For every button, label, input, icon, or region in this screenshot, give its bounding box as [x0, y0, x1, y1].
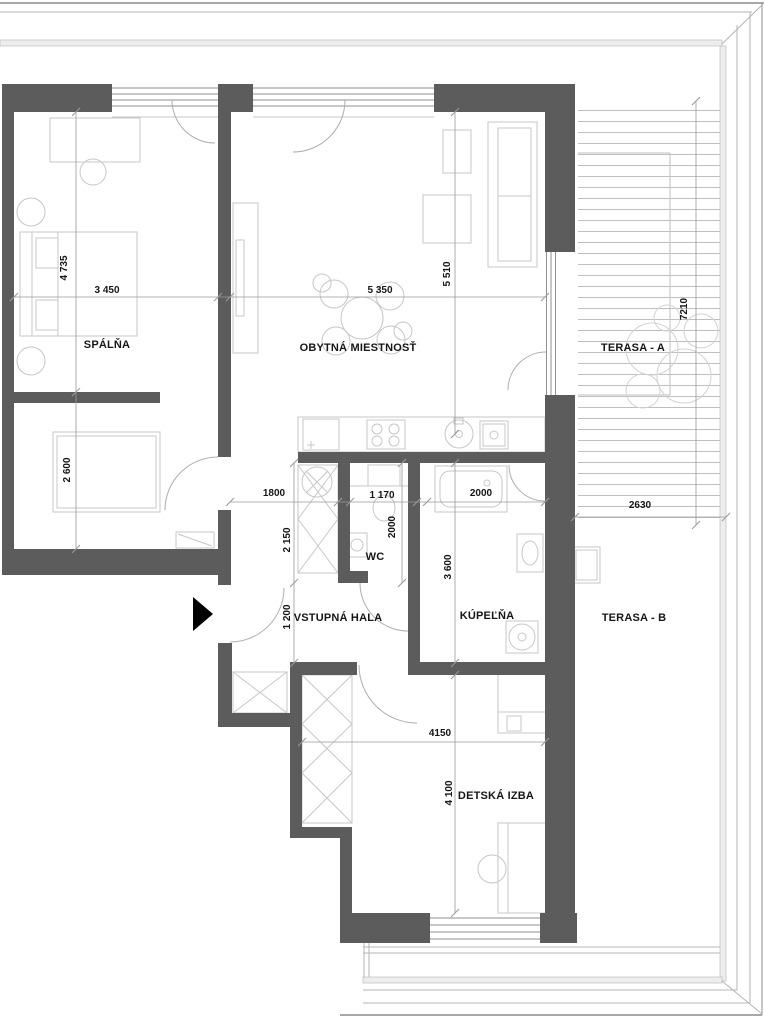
terrace-a-door-swing	[508, 352, 546, 390]
kids-bed	[498, 672, 547, 733]
bedroom-bed	[20, 232, 137, 336]
dim-bedroom-width: 3 450	[94, 285, 119, 296]
hob-burner	[389, 436, 399, 446]
wall-segment	[434, 84, 575, 112]
bedroom-plant	[17, 347, 45, 375]
wall-segment	[2, 549, 218, 575]
dim-hall-width: 1800	[263, 488, 286, 499]
dim-kids-width: 4150	[429, 728, 452, 739]
dim-terrace-b-width: 2630	[629, 500, 652, 511]
kids-chair	[478, 855, 506, 883]
dishwasher-inner	[483, 424, 505, 446]
tv-set	[236, 240, 244, 316]
room-label-wc: WC	[366, 551, 385, 563]
terrace-unit-inner	[576, 550, 597, 580]
wc-cistern	[368, 465, 400, 486]
bedroom-chair	[80, 159, 106, 185]
wall-segment	[408, 463, 420, 675]
frame-band-bottom	[363, 977, 722, 983]
bedroom-door-swing	[165, 457, 218, 510]
walls-layer	[2, 84, 577, 943]
wall-segment	[218, 510, 231, 585]
bedroom-plant	[17, 198, 45, 226]
room-label-hall: VSTUPNÁ HALA	[294, 611, 383, 624]
wall-segment	[298, 452, 545, 463]
dim-bedroom-depth: 4 735	[59, 255, 70, 280]
wall-segment	[218, 713, 290, 727]
terrace-decking	[578, 104, 720, 528]
bath-basin-bowl	[522, 541, 538, 565]
wall-segment	[545, 112, 575, 252]
wall-segment	[545, 395, 575, 943]
wall-segment	[2, 84, 14, 563]
kitchen-hob	[367, 420, 405, 449]
washing-machine-door	[518, 633, 526, 641]
wall-segment	[340, 913, 430, 943]
dining-chair	[320, 280, 348, 308]
room-label-living: OBYTNÁ MIESTNOSŤ	[300, 341, 417, 354]
dining-plant	[313, 274, 331, 292]
room-label-bedroom: SPÁLŇA	[84, 338, 130, 351]
dishwasher	[480, 421, 508, 449]
bathtub-drain	[484, 480, 490, 486]
room-label-terrace-a: TERASA - A	[601, 342, 665, 354]
kids-bed-pillow	[507, 716, 521, 731]
dim-hall-lower-depth: 1 200	[282, 604, 293, 629]
living-balcony-door-swing	[293, 100, 345, 152]
dim-kids-depth: 4 100	[444, 780, 455, 805]
kids-desk	[498, 823, 547, 913]
tv-sideboard	[233, 203, 258, 353]
entry-door-swing	[230, 588, 284, 642]
wc-basin-bowl	[351, 539, 363, 551]
dim-living-depth: 5 510	[442, 261, 453, 286]
dining-plant	[394, 322, 412, 340]
entrance-arrow-icon	[193, 597, 213, 631]
dim-wc-depth: 2000	[387, 515, 398, 538]
wall-segment	[13, 392, 160, 403]
sofa-arm	[443, 130, 471, 173]
kitchen-round-sink-drain	[456, 431, 463, 438]
hob-burner	[372, 424, 382, 434]
wall-segment	[417, 662, 545, 675]
dim-closet-depth: 2 600	[62, 457, 73, 482]
frame-band-top	[0, 40, 722, 46]
room-label-bathroom: KÚPEĽŇA	[460, 609, 515, 622]
dim-bath-depth: 3 600	[443, 554, 454, 579]
dim-hall-upper-depth: 2 150	[282, 527, 293, 552]
wall-segment	[2, 84, 112, 112]
deck-boards	[578, 104, 720, 528]
wall-segment	[338, 463, 350, 583]
wall-segment	[290, 662, 302, 838]
wall-segment	[290, 827, 352, 838]
wall-segment	[218, 112, 231, 457]
bedroom-desk	[50, 118, 140, 162]
wall-segment	[218, 84, 253, 112]
frame-miter-bottomright	[722, 981, 762, 1014]
terrace-unit	[573, 547, 600, 583]
bathroom-door-swing	[509, 465, 545, 501]
sofa-long-inner	[498, 128, 531, 261]
door-niche-cabinet-line	[178, 534, 212, 546]
frame-band-right	[720, 46, 726, 981]
floor-plan-drawing: 3 450 5 350 4 735 2 600 5 510 7210 1800 …	[0, 0, 764, 1020]
dim-living-width: 5 350	[367, 285, 392, 296]
dim-bath-width: 2000	[470, 488, 493, 499]
wall-segment	[338, 571, 368, 583]
bed-pillow	[36, 238, 58, 268]
room-label-terrace-b: TERASA - B	[602, 612, 667, 624]
wall-segment	[540, 913, 577, 943]
dim-wc-width: 1 170	[369, 490, 394, 501]
washing-machine-drum	[509, 624, 535, 650]
bed-pillow	[36, 300, 58, 330]
sofa-long	[488, 122, 537, 267]
bath-basin	[517, 534, 543, 572]
room-label-kids: DETSKÁ IZBA	[458, 789, 534, 802]
hob-burner	[372, 436, 382, 446]
hob-burner	[389, 424, 399, 434]
floor-plan-canvas: 3 450 5 350 4 735 2 600 5 510 7210 1800 …	[0, 0, 764, 1020]
coffee-table	[423, 195, 471, 243]
dim-terrace-a-length: 7210	[679, 297, 690, 320]
frame-miter-topright	[722, 5, 762, 44]
dishwasher-dial	[490, 431, 498, 439]
washing-machine	[506, 621, 538, 653]
